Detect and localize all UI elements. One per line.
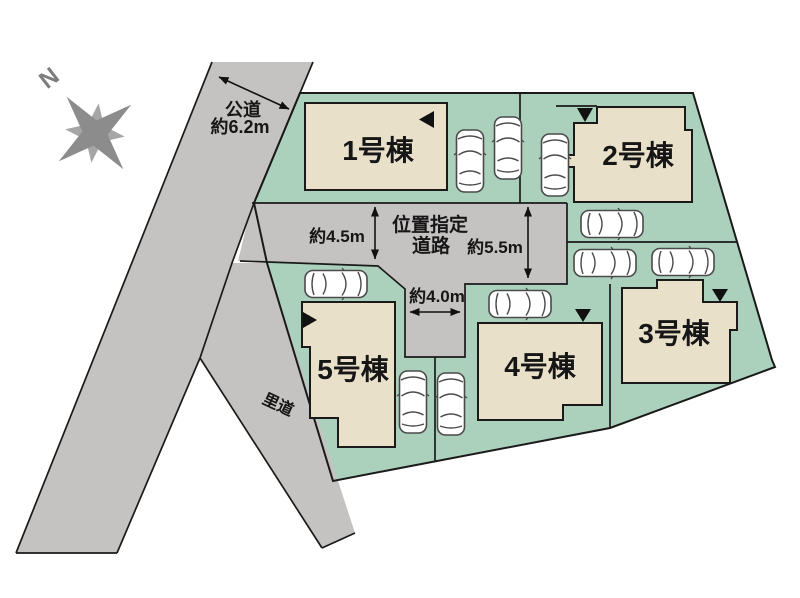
public-road-width: 約6.2m	[210, 116, 269, 137]
road-width-branch: 約4.0m	[409, 286, 465, 306]
road-width-left: 約4.5m	[309, 226, 365, 246]
building-1-label: 1号棟	[342, 135, 415, 166]
car-icon	[305, 268, 367, 300]
car-icon	[489, 288, 551, 320]
car-icon	[454, 130, 486, 192]
site-plan: N 公道 約6.2m 里道 位置指定 道路 約4.5m 約5.5m 約4.0m …	[0, 0, 800, 598]
building-3-label: 3号棟	[638, 318, 711, 349]
building-2-label: 2号棟	[602, 140, 675, 171]
car-icon	[652, 246, 714, 278]
building-4-label: 4号棟	[504, 351, 577, 382]
car-icon	[435, 373, 467, 435]
car-icon	[581, 208, 643, 240]
car-icon	[539, 134, 571, 196]
car-icon	[492, 117, 524, 179]
compass-n-label: N	[34, 62, 64, 94]
site-plan-canvas: N 公道 約6.2m 里道 位置指定 道路 約4.5m 約5.5m 約4.0m …	[0, 0, 800, 598]
road-width-right: 約5.5m	[467, 237, 523, 257]
car-icon	[574, 247, 636, 279]
car-icon	[397, 371, 429, 433]
building-5-label: 5号棟	[317, 354, 390, 385]
designated-road-name-line2: 道路	[412, 234, 451, 257]
designated-road-name-line1: 位置指定	[392, 213, 468, 236]
